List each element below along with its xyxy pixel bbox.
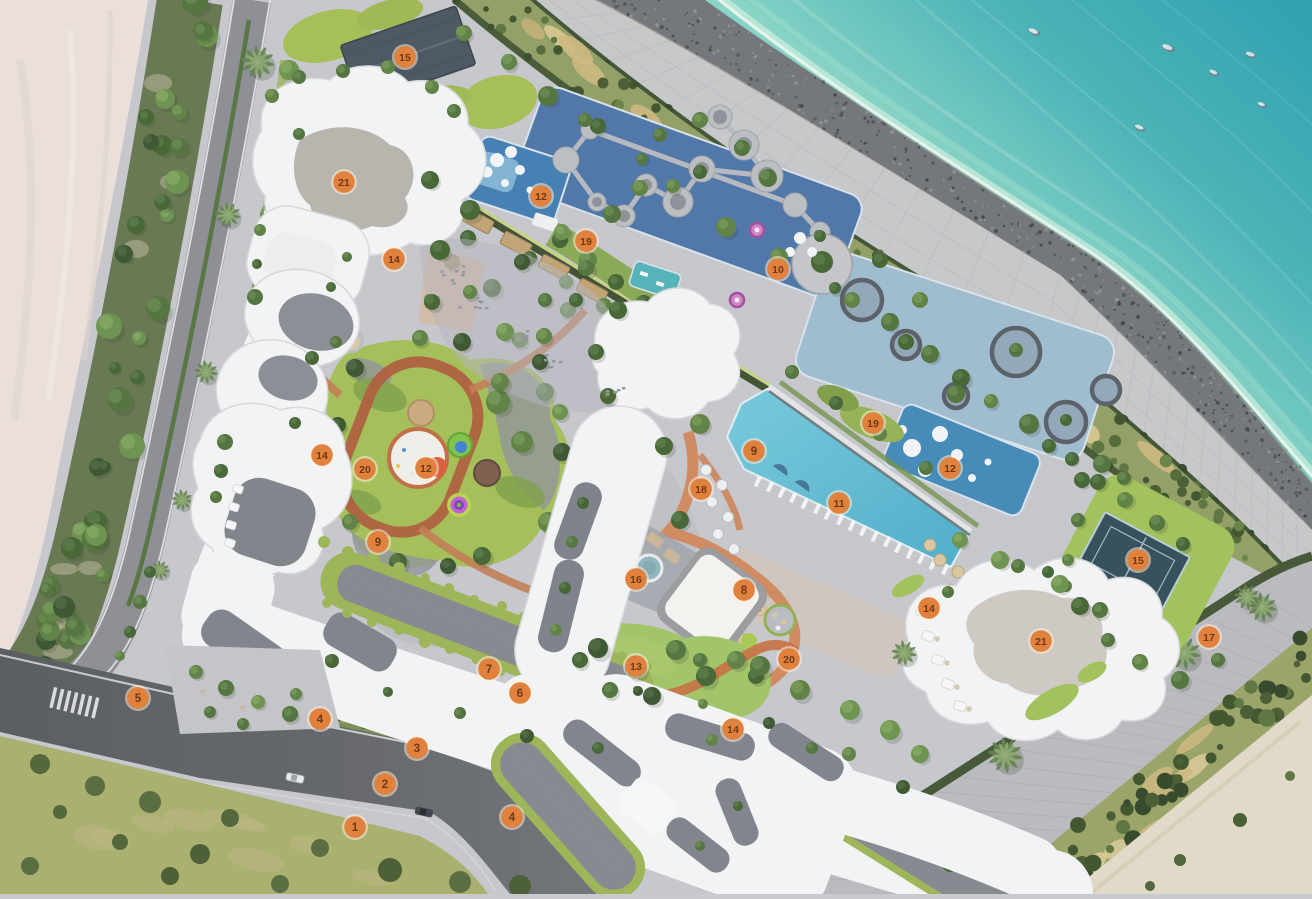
svg-text:21: 21 [1035, 636, 1047, 648]
svg-text:7: 7 [486, 664, 492, 676]
svg-text:5: 5 [135, 693, 142, 705]
svg-text:2: 2 [382, 779, 388, 791]
svg-text:3: 3 [414, 743, 420, 755]
svg-text:14: 14 [727, 724, 739, 736]
svg-text:8: 8 [741, 585, 748, 597]
svg-text:15: 15 [1132, 555, 1144, 567]
svg-text:14: 14 [388, 254, 400, 266]
svg-text:19: 19 [867, 418, 879, 430]
svg-text:19: 19 [580, 236, 592, 248]
svg-text:18: 18 [695, 484, 707, 496]
svg-text:16: 16 [630, 574, 642, 586]
svg-text:20: 20 [783, 654, 795, 666]
svg-text:4: 4 [509, 812, 516, 824]
svg-text:6: 6 [517, 688, 523, 700]
svg-text:12: 12 [535, 191, 547, 203]
svg-text:14: 14 [923, 603, 935, 615]
svg-text:17: 17 [1203, 632, 1215, 644]
svg-text:12: 12 [420, 463, 432, 475]
svg-text:14: 14 [316, 450, 328, 462]
svg-text:4: 4 [317, 714, 324, 726]
svg-text:13: 13 [630, 661, 642, 673]
svg-text:9: 9 [375, 537, 381, 549]
svg-text:12: 12 [944, 463, 956, 475]
svg-text:10: 10 [772, 264, 784, 276]
svg-text:9: 9 [751, 446, 757, 458]
svg-text:21: 21 [338, 177, 350, 189]
svg-text:11: 11 [833, 498, 844, 510]
svg-text:1: 1 [352, 822, 359, 834]
svg-text:20: 20 [359, 464, 371, 476]
svg-text:15: 15 [399, 52, 411, 64]
